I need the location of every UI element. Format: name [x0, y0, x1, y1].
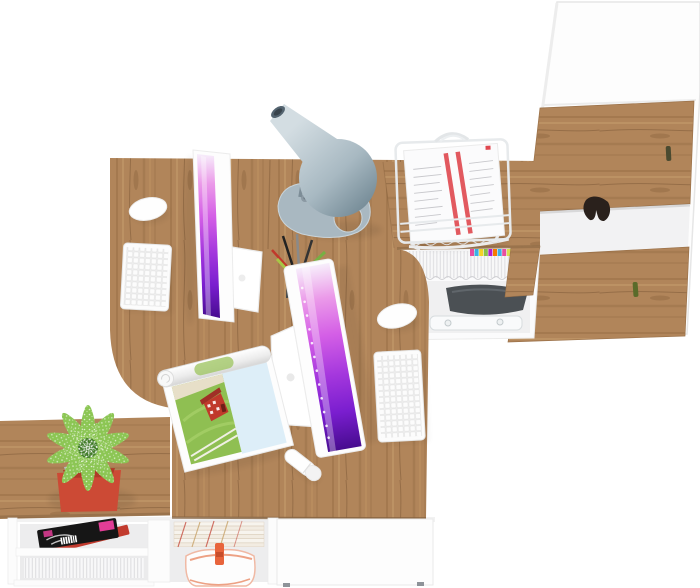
sideboard-left-panel — [8, 518, 17, 584]
keyboard-2 — [374, 350, 430, 445]
door-handle-upper — [666, 146, 672, 161]
sideboard-door — [277, 519, 433, 585]
keyboard-1-keys — [124, 247, 169, 307]
workspace-render — [0, 0, 700, 588]
lamp-shade — [299, 139, 377, 217]
glass-knob-left — [445, 320, 451, 326]
divider-1 — [148, 520, 170, 582]
foot-left — [283, 583, 290, 587]
glass-knob-right — [497, 319, 503, 325]
stacked-papers — [24, 558, 144, 578]
sideboard-bottom-board — [14, 580, 154, 586]
keyboard-1 — [120, 243, 175, 314]
red-mark — [485, 146, 490, 150]
glass-tray — [430, 316, 522, 330]
keyboard-2-keys — [377, 354, 422, 438]
apple-logo-1 — [239, 275, 246, 282]
bag-buckle — [216, 552, 223, 557]
door-handle-lower — [633, 282, 639, 297]
shelf-board — [16, 548, 152, 556]
foot-right — [417, 582, 424, 586]
paper-tray — [395, 132, 511, 252]
scene-svg — [0, 0, 700, 588]
